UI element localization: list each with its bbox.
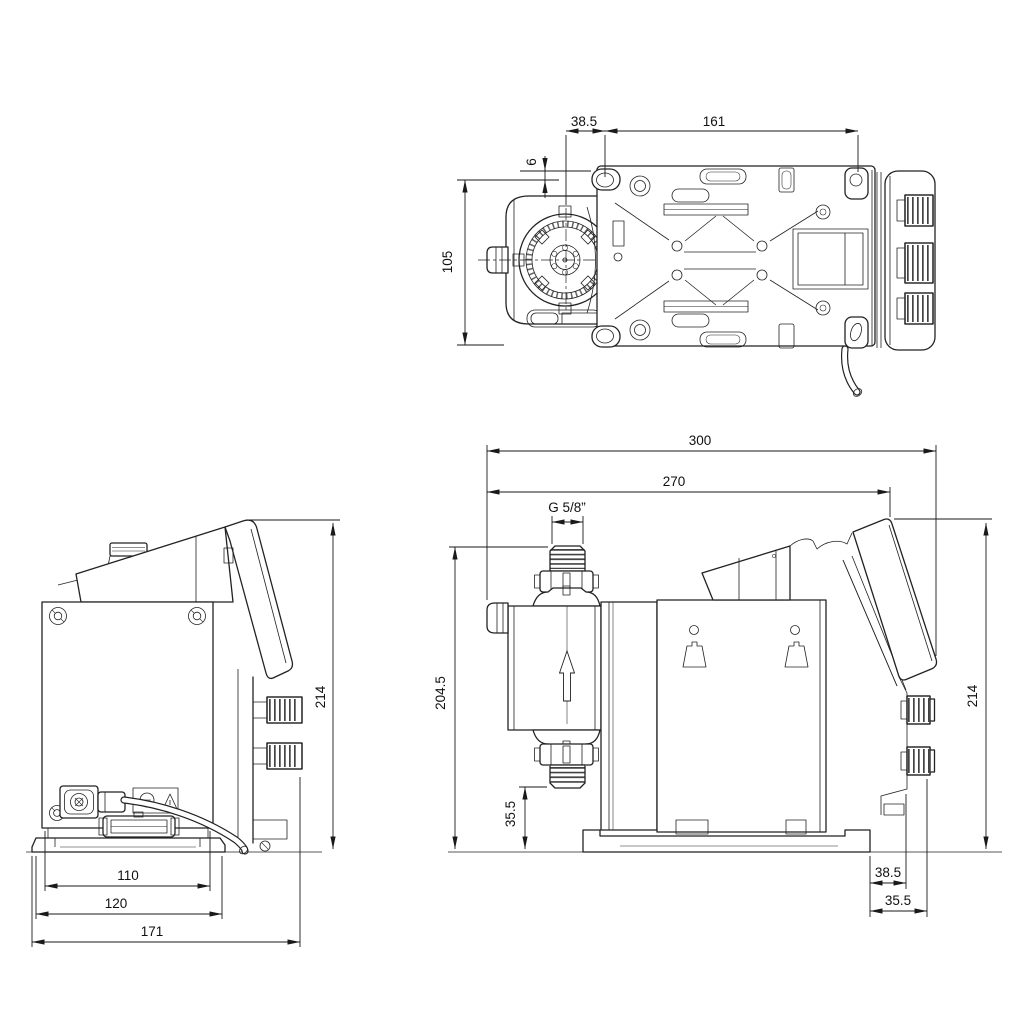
rear-view-body-right — [238, 669, 302, 851]
technical-drawing-canvas: 38.5 161 6 105 — [0, 0, 1024, 1024]
dim-label-120: 120 — [105, 896, 128, 911]
dim-label-thread: G 5/8” — [548, 500, 586, 515]
dim-label-38-5: 38.5 — [875, 865, 901, 880]
dim-label-300: 300 — [689, 433, 712, 448]
side-view-motor-section — [601, 602, 657, 830]
power-cable — [845, 349, 864, 398]
dim-label-171: 171 — [141, 924, 164, 939]
connector-knob — [901, 747, 935, 775]
connector-knob — [253, 743, 302, 769]
dim-label-270: 270 — [663, 474, 686, 489]
mounting-foot — [32, 838, 225, 852]
top-view-mounting-plate — [592, 166, 875, 348]
dim-label-204-5: 204.5 — [433, 676, 448, 710]
dim-label-214: 214 — [313, 685, 328, 708]
connector-knob — [253, 697, 302, 723]
dim-label-214: 214 — [965, 684, 980, 707]
dim-label-35-5-right: 35.5 — [885, 893, 911, 908]
side-view-connector-housing — [881, 677, 935, 815]
dim-label-105: 105 — [440, 251, 455, 274]
suction-union-nut — [540, 744, 593, 765]
side-view: 300 270 G 5/8” 204.5 35.5 214 38.5 35.5 — [433, 433, 1002, 917]
left-connector-knob — [487, 603, 508, 633]
side-view-dosing-head — [487, 546, 601, 788]
mounting-foot — [583, 830, 870, 852]
pump-head-body — [508, 606, 601, 730]
side-view-base — [583, 830, 870, 852]
dim-label-38-5: 38.5 — [571, 114, 597, 129]
top-view: 38.5 161 6 105 — [440, 114, 935, 398]
dim-label-161: 161 — [703, 114, 726, 129]
connector-knob — [901, 696, 935, 724]
dim-label-110: 110 — [117, 868, 139, 883]
dim-label-6: 6 — [524, 158, 539, 166]
dim-label-35-5-left: 35.5 — [503, 801, 518, 827]
pump-dimensional-drawing: 38.5 161 6 105 — [0, 0, 1024, 1024]
side-view-main-body — [657, 600, 826, 834]
